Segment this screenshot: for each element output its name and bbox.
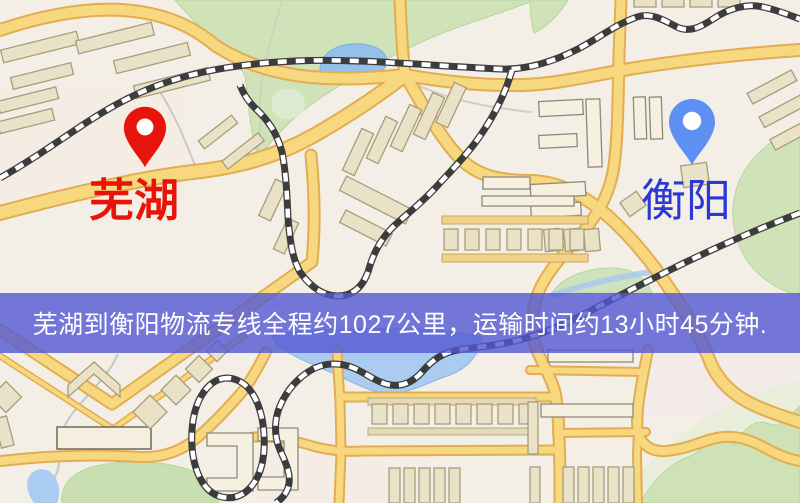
- origin-pin-icon: [123, 105, 167, 169]
- destination-label: 衡阳: [641, 178, 731, 223]
- route-info-banner: 芜湖到衡阳物流专线全程约1027公里，运输时间约13小时45分钟.: [0, 293, 800, 353]
- map-canvas: [0, 0, 800, 503]
- map-image: 芜湖 衡阳 芜湖到衡阳物流专线全程约1027公里，运输时间约13小时45分钟.: [0, 0, 800, 503]
- destination-pin-icon: [667, 98, 717, 166]
- route-info-text: 芜湖到衡阳物流专线全程约1027公里，运输时间约13小时45分钟.: [33, 305, 768, 341]
- origin-label: 芜湖: [89, 178, 179, 223]
